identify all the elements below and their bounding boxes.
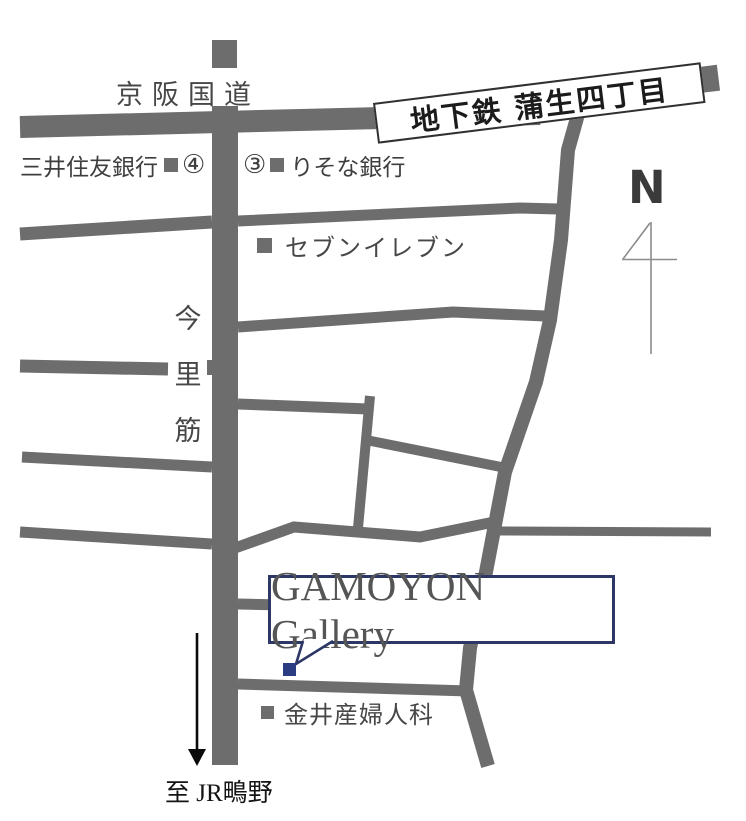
seven-eleven-row: セブンイレブン xyxy=(257,232,467,258)
road-left-lower-1 xyxy=(22,457,212,467)
arrow-head xyxy=(188,749,206,766)
clinic-label: 金井産婦人科 xyxy=(284,695,434,730)
compass-north-label: N xyxy=(628,161,666,214)
bank-smbc-marker-icon xyxy=(164,158,178,172)
bank-resona-label: りそな銀行 xyxy=(290,148,405,182)
compass-arrow xyxy=(622,222,677,354)
road-block-west xyxy=(238,404,368,409)
road-left-stub xyxy=(20,366,168,369)
keihan-road-label: 京阪国道 xyxy=(116,73,260,112)
road-block-diagonal xyxy=(366,440,511,469)
exit-3-label: ③ xyxy=(243,150,266,180)
imazato-char-3: 筋 xyxy=(175,409,202,448)
road-middle-cross xyxy=(238,312,545,327)
imazato-char-2: 里 xyxy=(175,353,202,392)
imazato-suji-label: 今 里 筋 xyxy=(172,297,204,448)
seven-eleven-label: セブンイレブン xyxy=(285,228,467,263)
road-seven-eleven xyxy=(238,208,558,221)
gallery-name-label: GAMOYON Gallery xyxy=(271,562,612,658)
bank-resona-marker-icon xyxy=(270,158,284,172)
clinic-row: 金井産婦人科 xyxy=(261,699,434,725)
clinic-marker-icon xyxy=(261,706,274,719)
road-block-north-south xyxy=(358,396,370,528)
imazato-char-1: 今 xyxy=(175,297,202,336)
arrow-to-jr xyxy=(188,633,206,766)
access-map: 地下鉄 蒲生四丁目 京阪国道 三井住友銀行 ④ ③ りそな銀行 セブンイレブン … xyxy=(0,0,746,821)
road-east-cross xyxy=(496,531,711,532)
to-jr-shigino-label: 至 JR鴫野 xyxy=(165,773,273,809)
exit-4-label: ④ xyxy=(182,150,205,180)
bank-smbc-label: 三井住友銀行 xyxy=(20,148,158,182)
gallery-location-marker xyxy=(283,663,296,676)
seven-eleven-marker-icon xyxy=(257,238,272,253)
road-stub-square xyxy=(207,360,221,375)
road-subway-diagonal xyxy=(466,100,582,766)
gallery-callout-box: GAMOYON Gallery xyxy=(268,575,615,644)
road-winding-cross xyxy=(235,521,499,548)
bank-resona-row: ③ りそな銀行 xyxy=(243,148,405,182)
road-left-lower-2 xyxy=(20,532,212,544)
road-left-upper xyxy=(20,222,212,234)
bank-smbc-row: 三井住友銀行 ④ xyxy=(20,148,205,182)
road-clinic-street xyxy=(238,684,469,691)
